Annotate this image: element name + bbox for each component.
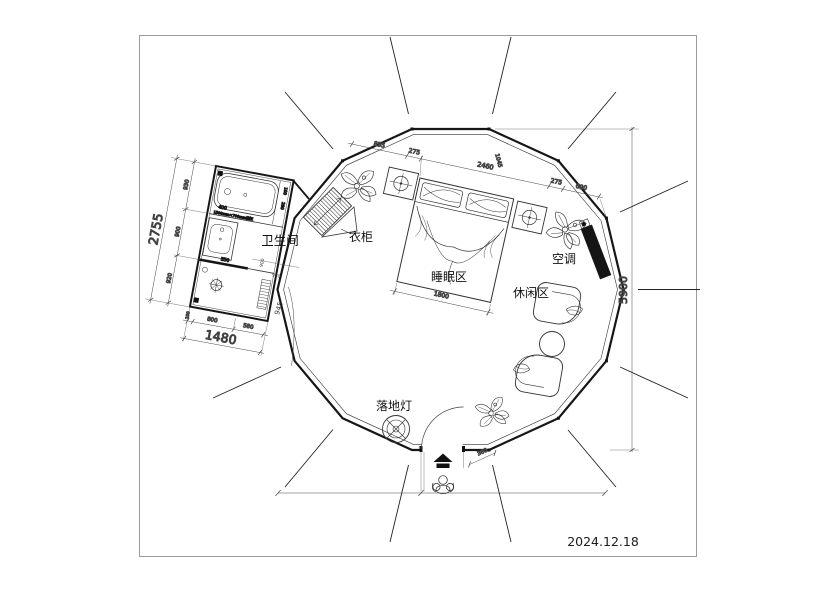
label-wardrobe: 衣柜	[349, 229, 373, 244]
floorplan-drawing: 400 1500mm×700mm浴缸 550 100 280 930 900 9…	[0, 0, 837, 592]
label-air-conditioner: 空调	[552, 252, 576, 266]
dim-height-total: 5900	[617, 276, 630, 304]
date-stamp: 2024.12.18	[567, 534, 639, 549]
label-leisure-area: 休闲区	[513, 286, 549, 300]
label-floor-lamp: 落地灯	[376, 399, 412, 413]
floorplan-canvas: 400 1500mm×700mm浴缸 550 100 280 930 900 9…	[0, 0, 837, 592]
label-bathroom: 卫生间	[261, 233, 299, 248]
label-sleeping-area: 睡眠区	[431, 270, 467, 284]
